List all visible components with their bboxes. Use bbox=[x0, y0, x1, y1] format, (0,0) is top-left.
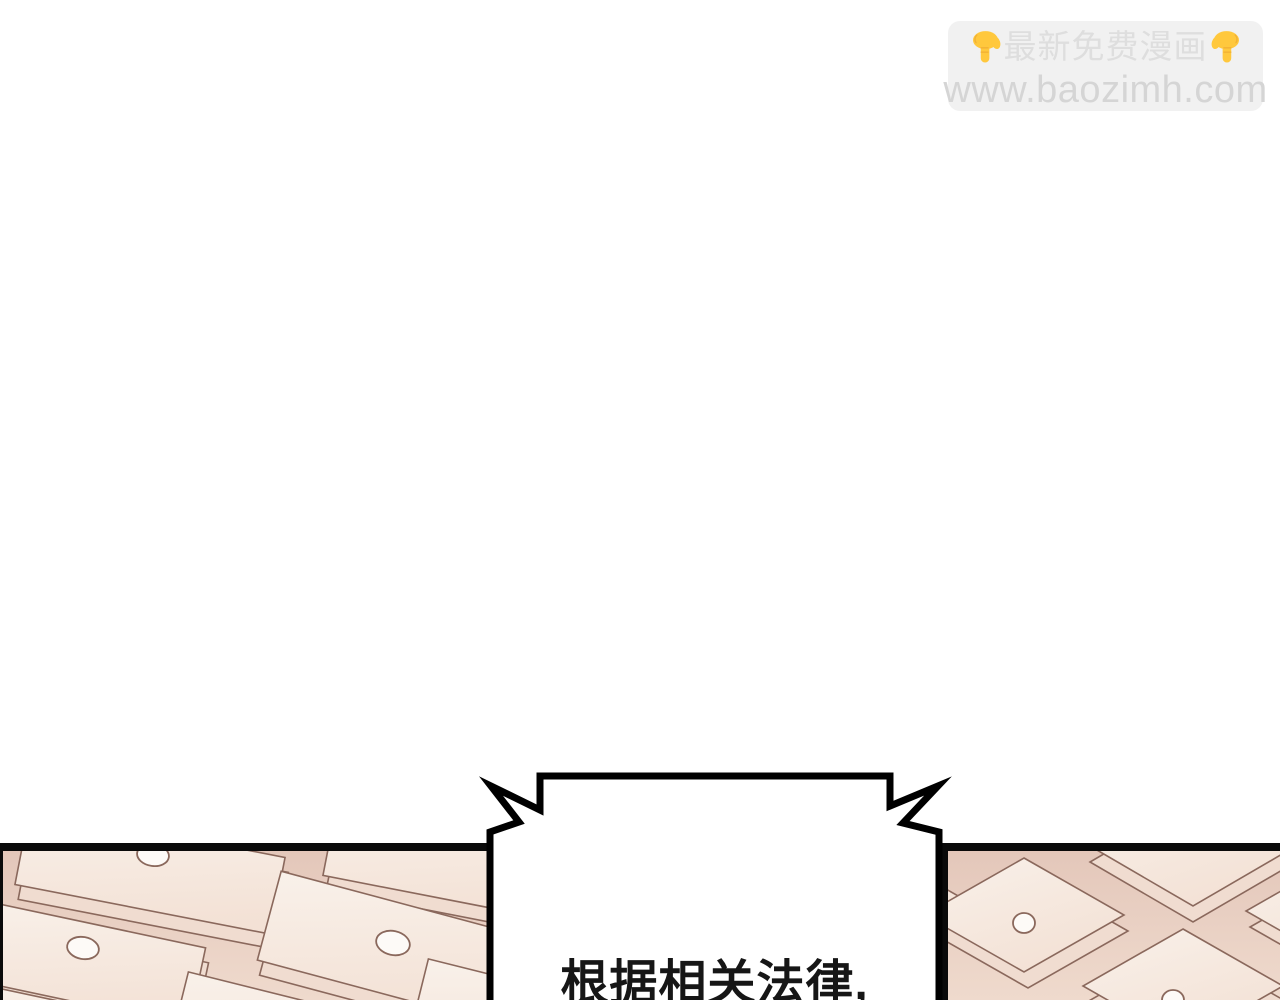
speech-bubble-layer bbox=[0, 0, 1280, 1000]
speech-bubble-text: 根据相关法律, bbox=[492, 956, 937, 1000]
page: 最新免费漫画 www.baozimh.com bbox=[0, 0, 1280, 1000]
